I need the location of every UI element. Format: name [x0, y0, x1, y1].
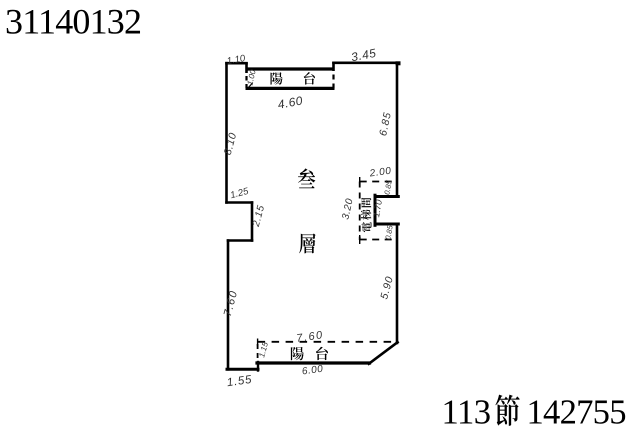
svg-text:3.20: 3.20	[340, 197, 355, 220]
svg-text:8.10: 8.10	[222, 131, 240, 156]
svg-text:113: 113	[442, 394, 492, 432]
svg-text:2.00: 2.00	[368, 166, 392, 180]
svg-text:0.85: 0.85	[382, 179, 394, 196]
svg-text:6.85: 6.85	[377, 111, 394, 137]
svg-text:142755: 142755	[527, 394, 627, 432]
svg-text:7.60: 7.60	[222, 289, 241, 318]
svg-text:6.00: 6.00	[301, 364, 324, 378]
svg-text:31140132: 31140132	[5, 2, 142, 42]
svg-text:1.10: 1.10	[226, 53, 247, 67]
svg-text:1.55: 1.55	[226, 374, 253, 389]
svg-text:4.60: 4.60	[277, 93, 304, 111]
svg-text:1.15: 1.15	[257, 341, 270, 359]
svg-text:1.00: 1.00	[246, 68, 258, 86]
svg-text:5.90: 5.90	[378, 275, 396, 301]
svg-text:0.85: 0.85	[383, 224, 395, 241]
svg-text:1.25: 1.25	[229, 186, 250, 202]
svg-text:1.70: 1.70	[371, 199, 384, 218]
